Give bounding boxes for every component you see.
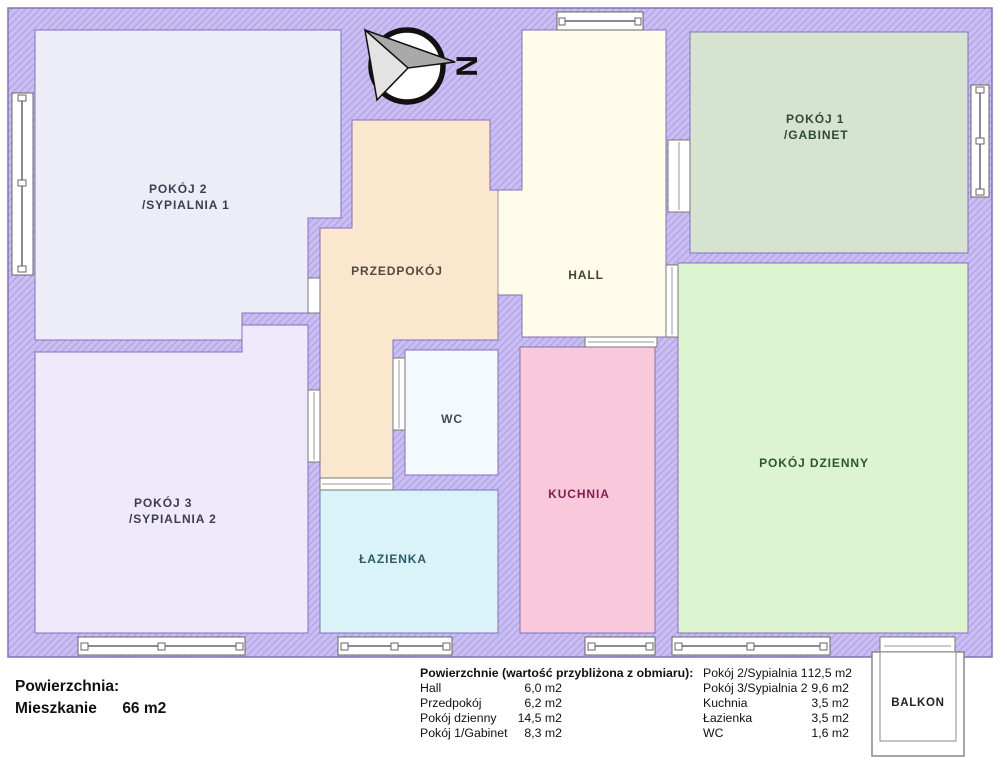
door-hall-kuchnia bbox=[585, 337, 657, 347]
area-row: Pokój dzienny 14,5 m2 bbox=[420, 711, 562, 726]
door-hall-dzienny bbox=[666, 265, 678, 337]
area-row-value: 14,5 m2 bbox=[518, 711, 562, 726]
window-pokoj2-left bbox=[12, 93, 33, 275]
pokoj1-label-line1: POKÓJ 1 bbox=[786, 111, 844, 126]
area-row-name: Pokój 1/Gabinet bbox=[420, 726, 508, 741]
przedpokoj-label: PRZEDPOKÓJ bbox=[351, 263, 443, 278]
window-pokoj1-right bbox=[971, 85, 989, 197]
door-przedpokoj-wc bbox=[393, 358, 405, 430]
door-pokoj3-przedpokoj bbox=[308, 390, 320, 462]
area-row: Pokój 3/Sypialnia 2 9,6 m2 bbox=[703, 681, 849, 696]
area-row: Pokój 1/Gabinet 8,3 m2 bbox=[420, 726, 562, 741]
area-row: Kuchnia 3,5 m2 bbox=[703, 696, 849, 711]
area-row-name: Przedpokój bbox=[420, 696, 482, 711]
area-row: WC 1,6 m2 bbox=[703, 726, 849, 741]
area-row-name: Łazienka bbox=[703, 711, 752, 726]
room-pokoj1-floor bbox=[690, 32, 968, 253]
area-row-name: Kuchnia bbox=[703, 696, 747, 711]
door-hall-pokoj1 bbox=[668, 140, 690, 212]
area-row: Hall 6,0 m2 bbox=[420, 681, 562, 696]
area-row-name: Pokój 2/Sypialnia 1 bbox=[703, 666, 808, 681]
area-row: Łazienka 3,5 m2 bbox=[703, 711, 849, 726]
door-pokoj2-przedpokoj bbox=[308, 278, 320, 313]
area-row-value: 8,3 m2 bbox=[524, 726, 562, 741]
area-row-name: Hall bbox=[420, 681, 441, 696]
balkon-label: BALKON bbox=[891, 697, 944, 709]
area-row-name: WC bbox=[703, 726, 724, 741]
area-table-title: Powierzchnie (wartość przybliżona z obmi… bbox=[420, 666, 562, 681]
pokoj3-label-line2: /SYPIALNIA 2 bbox=[129, 512, 217, 526]
area-row-value: 6,0 m2 bbox=[524, 681, 562, 696]
window-kuchnia-bottom bbox=[585, 637, 655, 655]
area-summary-name: Mieszkanie bbox=[15, 698, 118, 720]
room-pokoj3-floor bbox=[35, 325, 308, 633]
door-przedpokoj-lazienka bbox=[320, 478, 393, 490]
area-row-value: 6,2 m2 bbox=[524, 696, 562, 711]
area-row: Pokój 2/Sypialnia 1 12,5 m2 bbox=[703, 666, 849, 681]
window-dzienny-bottom bbox=[672, 637, 830, 655]
area-row-value: 3,5 m2 bbox=[811, 696, 849, 711]
pokoj2-label-line1: POKÓJ 2 bbox=[149, 181, 207, 196]
area-table-col2: Pokój 2/Sypialnia 1 12,5 m2 Pokój 3/Sypi… bbox=[703, 666, 849, 741]
area-summary: Powierzchnia: Mieszkanie 66 m2 bbox=[15, 676, 166, 720]
window-lazienka-bottom bbox=[338, 637, 452, 655]
floor-plan-drawing: BALKON N POKÓJ 2 /SYPIALNIA 1 POKÓJ 3 /S… bbox=[0, 0, 1007, 768]
area-row-value: 1,6 m2 bbox=[811, 726, 849, 741]
floor-plan-page: BALKON N POKÓJ 2 /SYPIALNIA 1 POKÓJ 3 /S… bbox=[0, 0, 1007, 768]
room-dzienny-floor bbox=[678, 263, 968, 633]
area-summary-value: 66 m2 bbox=[122, 700, 166, 717]
area-table-col1: Powierzchnie (wartość przybliżona z obmi… bbox=[420, 666, 562, 741]
kuchnia-label: KUCHNIA bbox=[548, 487, 610, 501]
area-row-name: Pokój dzienny bbox=[420, 711, 497, 726]
area-row: Przedpokój 6,2 m2 bbox=[420, 696, 562, 711]
area-summary-title: Powierzchnia: bbox=[15, 676, 166, 698]
wc-label: WC bbox=[441, 412, 463, 426]
hall-label: HALL bbox=[568, 268, 604, 282]
pokoj3-label-line1: POKÓJ 3 bbox=[134, 495, 192, 510]
lazienka-label: ŁAZIENKA bbox=[359, 552, 427, 566]
pokoj1-label-line2: /GABINET bbox=[784, 128, 849, 142]
window-pokoj3-bottom bbox=[78, 637, 245, 655]
balcony: BALKON bbox=[872, 652, 964, 756]
area-row-value: 9,6 m2 bbox=[811, 681, 849, 696]
compass-north-letter: N bbox=[450, 55, 483, 77]
dzienny-label: POKÓJ DZIENNY bbox=[759, 455, 869, 470]
window-hall-top bbox=[557, 12, 643, 30]
area-row-value: 12,5 m2 bbox=[808, 666, 852, 681]
area-row-name: Pokój 3/Sypialnia 2 bbox=[703, 681, 808, 696]
room-hall-floor bbox=[498, 30, 666, 337]
pokoj2-label-line2: /SYPIALNIA 1 bbox=[142, 198, 230, 212]
area-row-value: 3,5 m2 bbox=[811, 711, 849, 726]
